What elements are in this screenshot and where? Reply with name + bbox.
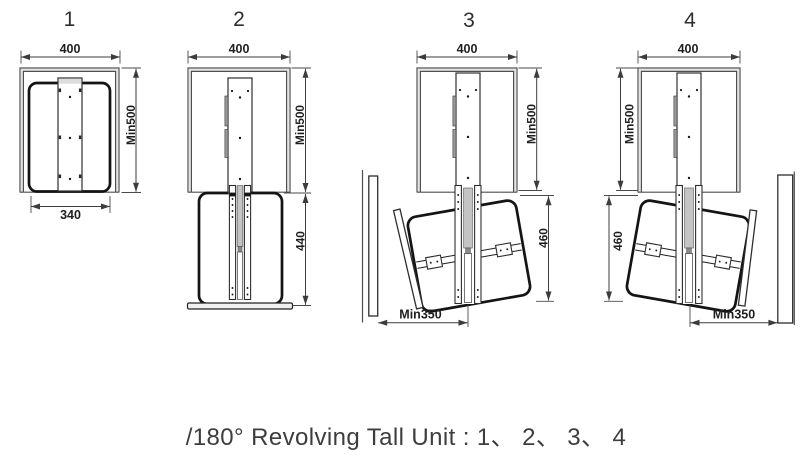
- panel-2-number: 2: [233, 8, 245, 31]
- dim-label-min500: Min500: [124, 105, 138, 145]
- panel-3-revolved-left-position: 3 400: [363, 9, 555, 327]
- panel-2-dim-width: 400: [188, 42, 290, 64]
- dim-label-min350: Min350: [713, 308, 755, 322]
- panel-2-mounting-plate: [225, 78, 252, 192]
- dim-label-min500: Min500: [623, 104, 637, 144]
- panel-2-dim-height-lower: 440: [293, 194, 311, 306]
- panel-4-revolved-right-position: 4 400: [604, 9, 794, 327]
- revolving-tall-unit-diagram: 1 400: [0, 0, 800, 458]
- dim-label-400: 400: [678, 42, 699, 56]
- panel-3-side-wall-panel: [363, 170, 378, 323]
- dim-label-min350: Min350: [399, 308, 441, 322]
- panel-1-dim-width: 400: [21, 42, 120, 64]
- diagram-canvas: 1 400: [0, 0, 800, 458]
- panel-1-number: 1: [64, 8, 76, 31]
- panel-3-dim-width: 400: [417, 42, 517, 64]
- panel-4-side-wall-panel: [778, 172, 795, 326]
- panel-1-closed-position: 1 400: [20, 8, 141, 222]
- panel-4-number: 4: [684, 9, 696, 32]
- dim-label-460: 460: [536, 228, 550, 248]
- dim-label-min500: Min500: [293, 105, 307, 145]
- panel-2-base-plate: [188, 303, 293, 309]
- panel-3-dim-height-upper: Min500: [519, 68, 543, 191]
- panel-3-mounting-plate: [453, 73, 480, 193]
- dim-label-400: 400: [229, 42, 250, 56]
- dim-label-400: 400: [457, 42, 478, 56]
- panel-3-rail-column: [455, 186, 482, 305]
- dim-label-440: 440: [294, 231, 308, 251]
- panel-4-mounting-plate: [674, 73, 701, 193]
- diagram-caption: /180° Revolving Tall Unit : 1、 2、 3、 4: [186, 424, 627, 451]
- dim-label-min500: Min500: [524, 104, 538, 144]
- panel-1-mounting-plate: [58, 78, 82, 191]
- panel-2-telescopic-rails: [229, 186, 251, 301]
- panel-4-rail-column: [676, 186, 703, 305]
- dim-label-400: 400: [60, 42, 81, 56]
- dim-label-460: 460: [611, 231, 625, 251]
- dim-label-340: 340: [60, 208, 81, 222]
- panel-3-number: 3: [463, 9, 475, 32]
- panel-1-dim-height: Min500: [122, 68, 142, 193]
- panel-1-dim-basket-width: 340: [31, 196, 110, 222]
- panel-2-pulled-down-position: 2 400: [188, 8, 312, 309]
- panel-4-dim-height-upper: Min500: [616, 68, 638, 191]
- panel-4-dim-width: 400: [638, 42, 740, 64]
